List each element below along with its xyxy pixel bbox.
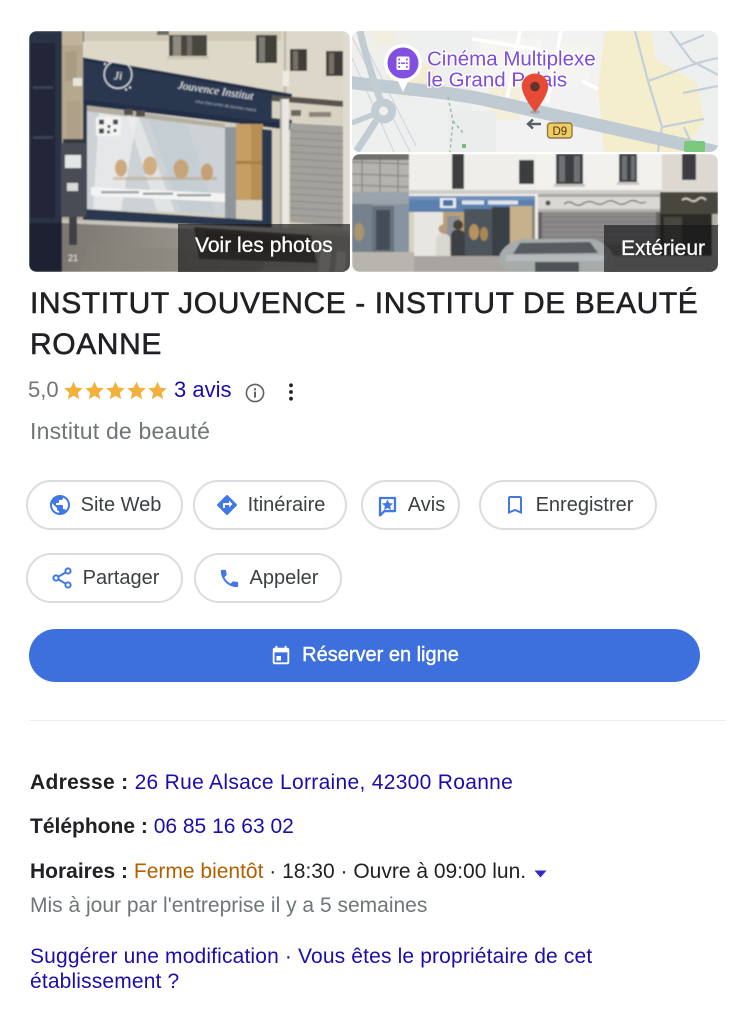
svg-text:21: 21 bbox=[68, 253, 78, 263]
svg-text:Ji: Ji bbox=[114, 69, 123, 83]
svg-text:Cinéma Multiplexe: Cinéma Multiplexe bbox=[427, 48, 596, 71]
svg-text:D9: D9 bbox=[552, 126, 567, 138]
